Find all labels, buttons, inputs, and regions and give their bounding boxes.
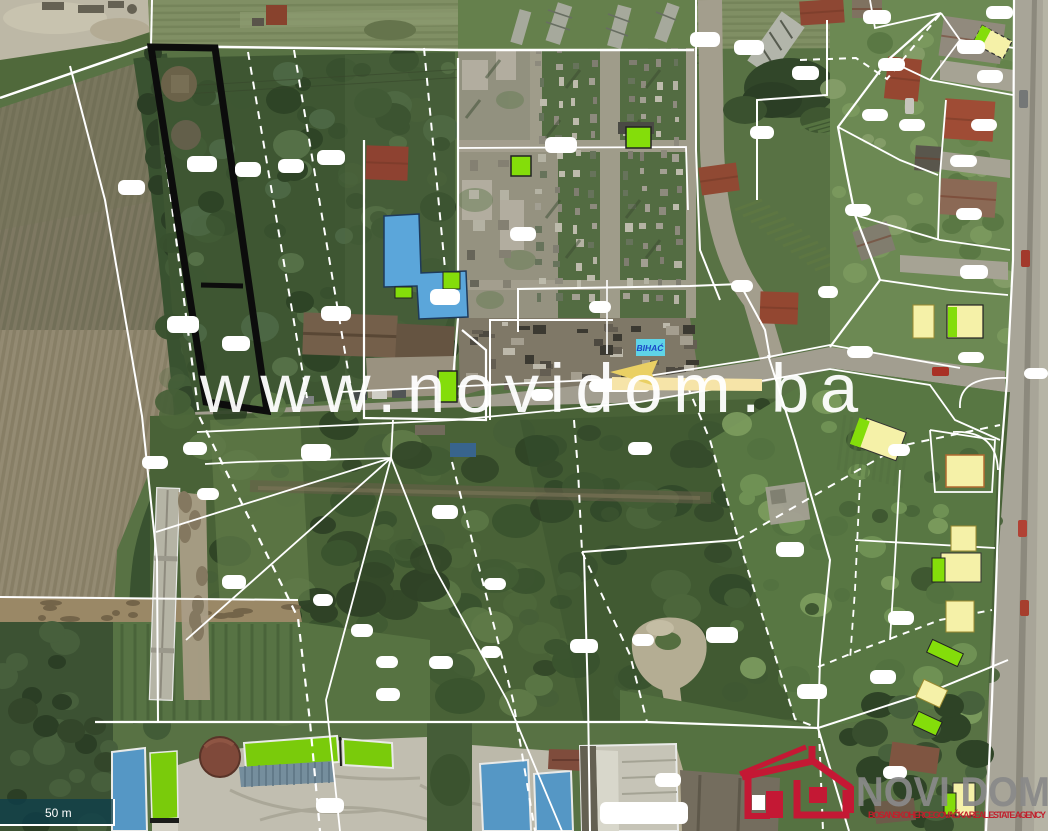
svg-text:NOVI DOM: NOVI DOM xyxy=(856,768,1048,815)
svg-text:BOSANSKOHERCEGOVAČKA REAL ESTA: BOSANSKOHERCEGOVAČKA REAL ESTATE AGENCY xyxy=(868,809,1046,820)
svg-text:50 m: 50 m xyxy=(45,806,72,820)
svg-text:www.novidom.ba: www.novidom.ba xyxy=(199,350,869,427)
